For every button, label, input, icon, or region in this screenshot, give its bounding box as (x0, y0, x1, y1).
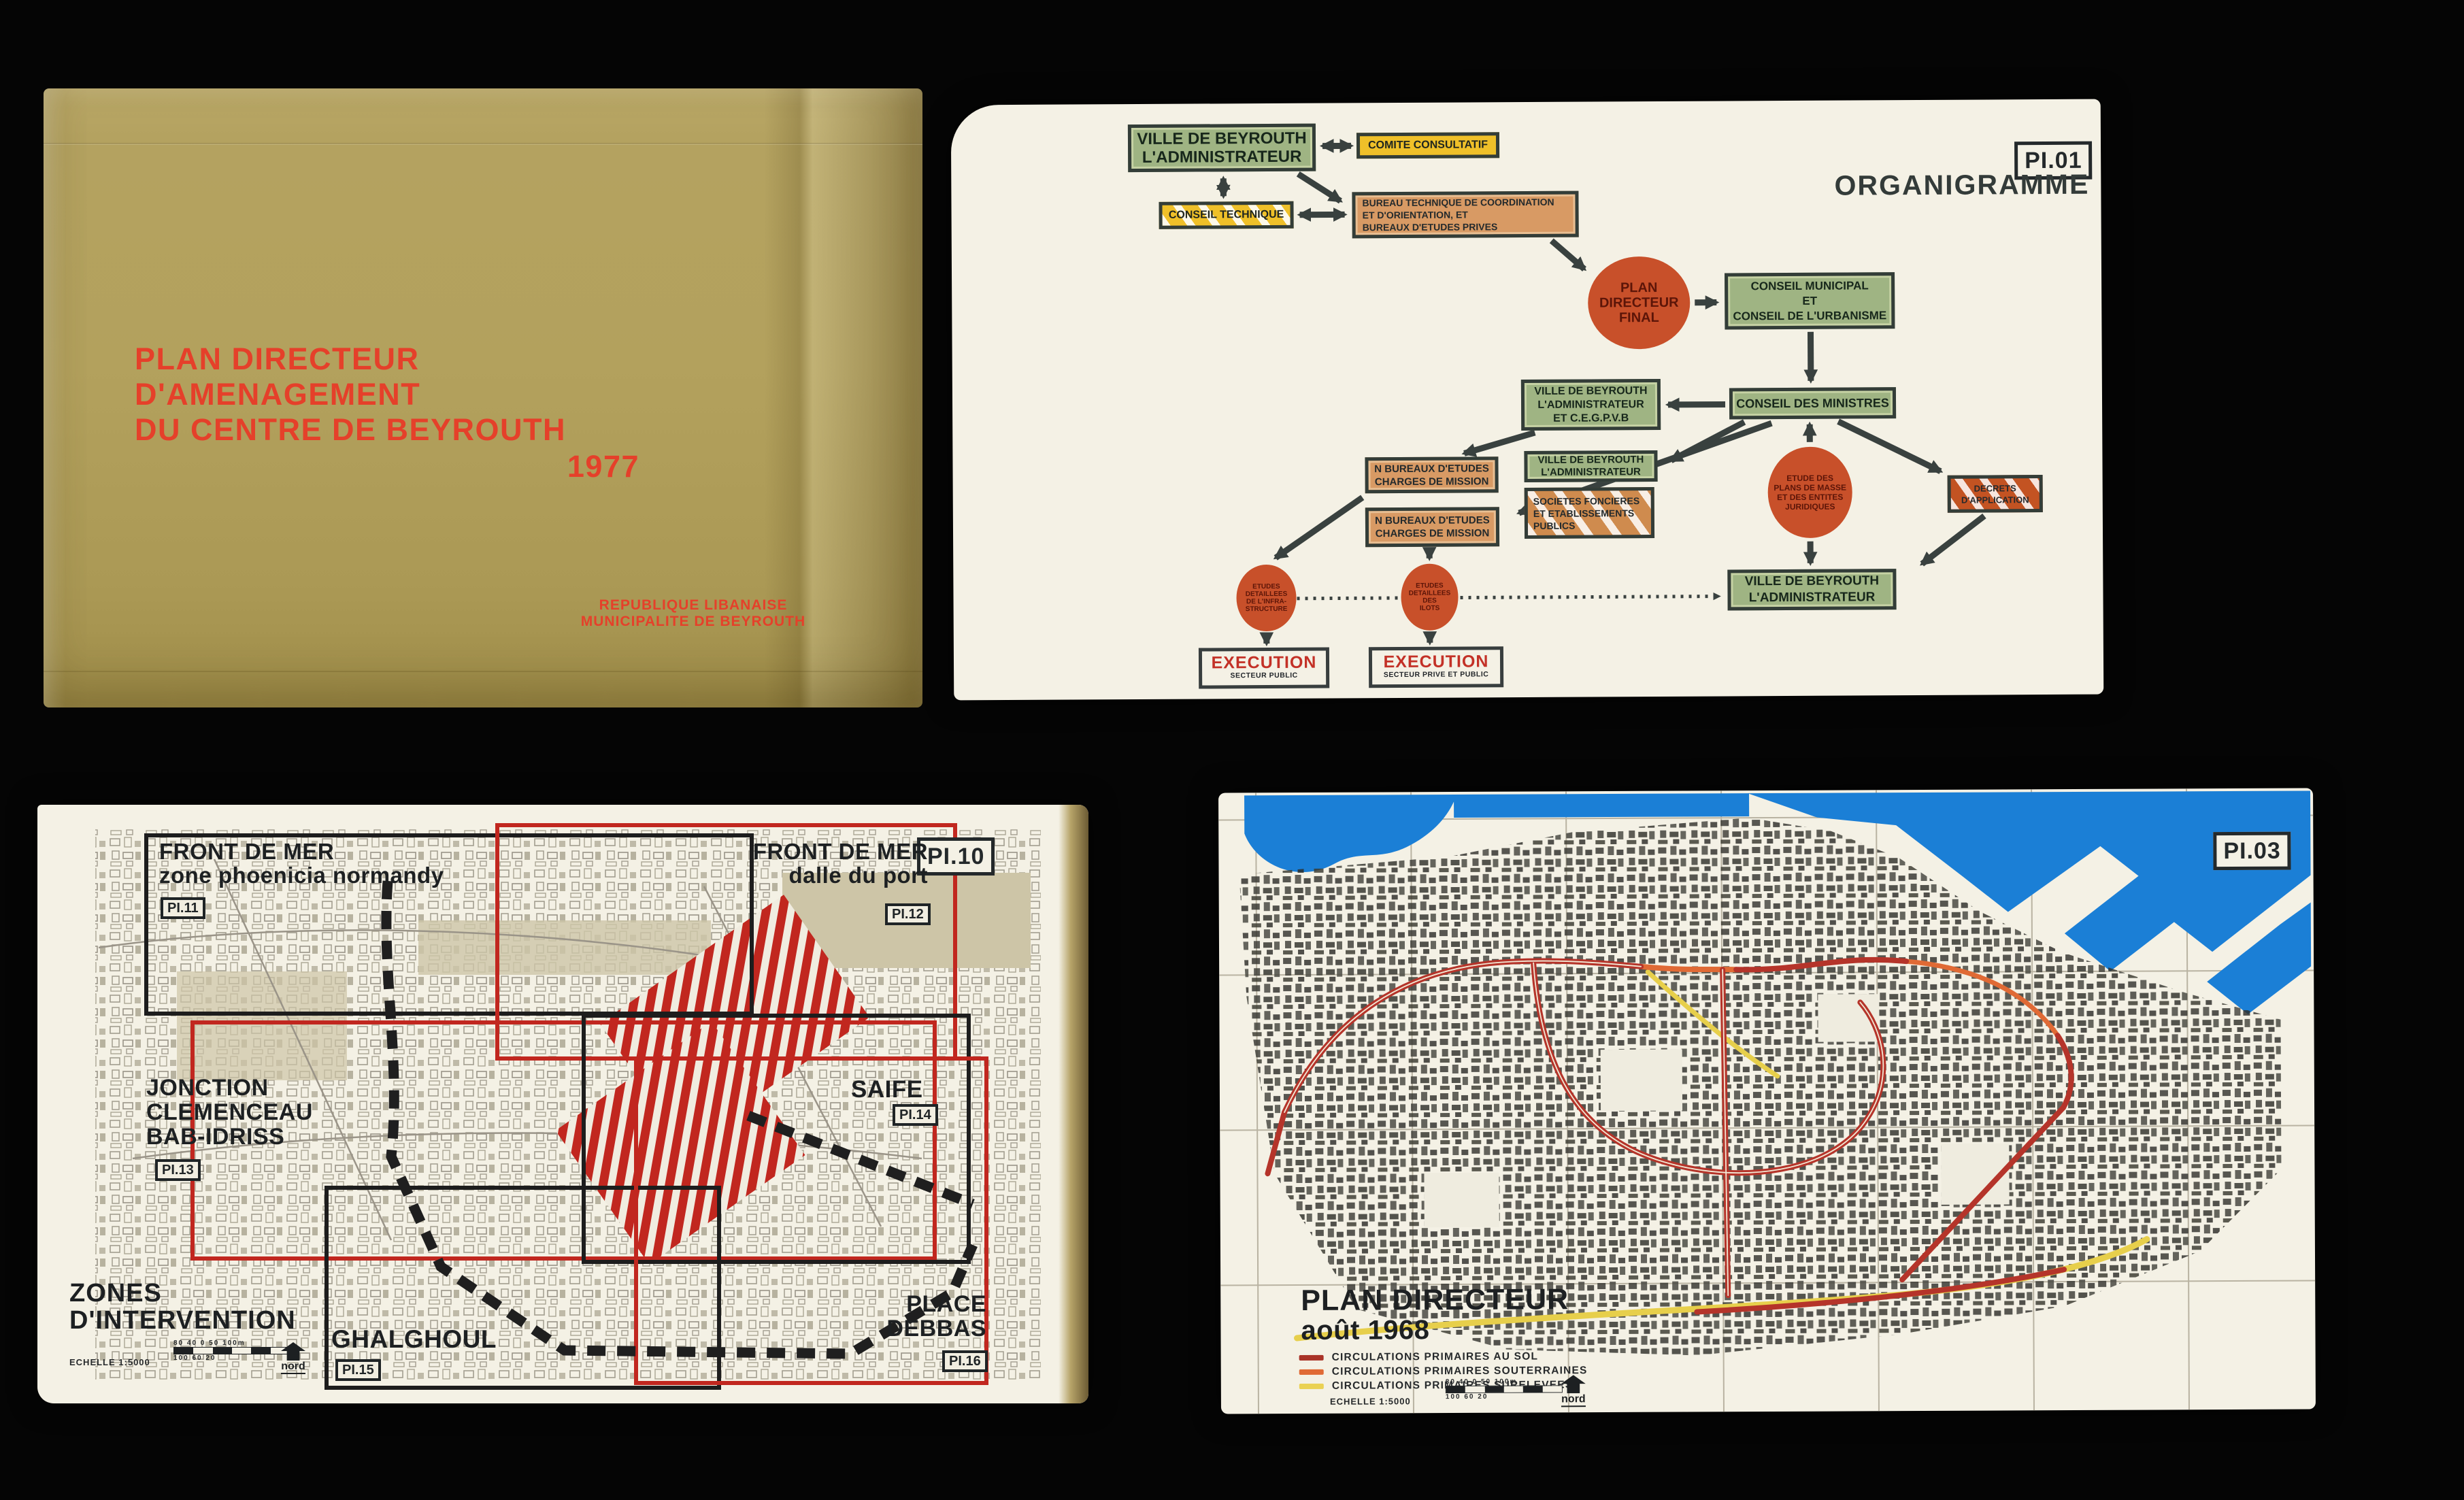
legend-swatch-souterraines (1299, 1369, 1324, 1375)
cover-title: PLAN DIRECTEUR D'AMENAGEMENT DU CENTRE D… (135, 341, 639, 484)
org-node-societes-foncieres: SOCIETES FONCIERES ET ETABLISSEMENTS PUB… (1525, 487, 1654, 539)
plan-scale-numbers-top: 80 40 0 50 100m (1446, 1378, 1563, 1386)
cover-title-year: 1977 (135, 449, 639, 484)
zone-badge-pi11: PI.11 (161, 897, 205, 919)
zone-badge-pi14: PI.14 (893, 1104, 938, 1126)
plan-scale-label: ECHELLE 1:5000 (1330, 1396, 1411, 1407)
legend-label-souterraines: CIRCULATIONS PRIMAIRES SOUTERRAINES (1332, 1365, 1588, 1378)
org-node-etudes-infrastructure: ETUDES DETAILLEES DE L'INFRA- STRUCTURE (1236, 565, 1297, 631)
legend-row-souterraines: CIRCULATIONS PRIMAIRES SOUTERRAINES (1299, 1365, 1588, 1378)
plan-scale-bar-segments (1446, 1385, 1563, 1393)
org-node-conseil-ministres: CONSEIL DES MINISTRES (1729, 387, 1896, 419)
cover-bottom-fold-line (44, 671, 922, 672)
org-node-conseil-technique: CONSEIL TECHNIQUE (1159, 201, 1293, 229)
org-node-decrets-application: DECRETS D'APPLICATION (1948, 475, 2043, 513)
page-curl-edge (1059, 805, 1088, 1403)
plan-subtitle: août 1968 (1301, 1316, 1429, 1345)
plan-north-arrow-icon (1561, 1375, 1586, 1393)
org-node-ville-administrateur-bottom: VILLE DE BEYROUTH L'ADMINISTRATEUR (1727, 569, 1896, 610)
org-node-plan-directeur-final: PLAN DIRECTEUR FINAL (1588, 256, 1691, 350)
zone-label-front-de-mer-dalle: FRONT DE MER dalle du port (724, 840, 928, 888)
legend-label-au-sol: CIRCULATIONS PRIMAIRES AU SOL (1332, 1350, 1539, 1363)
plan-scale-bar: 80 40 0 50 100m 100 60 20 (1446, 1378, 1563, 1401)
scale-numbers-top: 80 40 0 50 100m (173, 1339, 290, 1347)
org-node-conseil-municipal: CONSEIL MUNICIPAL ET CONSEIL DE L'URBANI… (1725, 272, 1895, 329)
org-node-bureau-technique: BUREAU TECHNIQUE DE COORDINATION ET D'OR… (1352, 191, 1578, 239)
scale-bar: 80 40 0 50 100m 100 60 20 (173, 1339, 290, 1362)
map-heading-zones-intervention: ZONES D'INTERVENTION (69, 1280, 296, 1335)
portfolio-cover: PLAN DIRECTEUR D'AMENAGEMENT DU CENTRE D… (44, 88, 922, 707)
plate-badge-pi10: PI.10 (917, 837, 995, 876)
north-arrow-icon (281, 1342, 305, 1361)
plan-title: PLAN DIRECTEUR (1301, 1284, 1569, 1316)
photo-collage-stage: PLAN DIRECTEUR D'AMENAGEMENT DU CENTRE D… (0, 0, 2464, 1500)
cover-fold-line (44, 143, 922, 145)
legend-swatch-au-sol (1299, 1355, 1324, 1361)
scale-bar-segments (173, 1347, 290, 1354)
cover-institution: REPUBLIQUE LIBANAISE MUNICIPALITE DE BEY… (520, 597, 867, 630)
organigramme-title: ORGANIGRAMME (1778, 169, 2089, 202)
organigramme-page: PI.01 ORGANIGRAMME VILLE DE BEYROUTH L'A… (951, 99, 2104, 701)
zone-badge-pi13: PI.13 (155, 1159, 201, 1181)
legend-swatch-surelevees (1299, 1384, 1324, 1389)
org-node-bureaux-etudes-1: N BUREAUX D'ETUDES CHARGES DE MISSION (1365, 456, 1498, 493)
scale-label: ECHELLE 1:5000 (69, 1357, 150, 1367)
plan-north-indicator: nord (1561, 1375, 1586, 1407)
org-node-ville-administrateur-mid: VILLE DE BEYROUTH L'ADMINISTRATEUR (1524, 450, 1657, 482)
execution-prive-subtitle: SECTEUR PRIVE ET PUBLIC (1372, 670, 1500, 679)
zone-label-saife: SAIFE (851, 1077, 923, 1102)
plan-scale-numbers-bottom: 100 60 20 (1446, 1393, 1563, 1401)
dotted-connector (1297, 597, 1720, 599)
org-node-execution-public: EXECUTION SECTEUR PUBLIC (1199, 648, 1329, 689)
zone-label-ghalghoul: GHALGHOUL (331, 1326, 497, 1352)
plan-north-label: nord (1561, 1393, 1586, 1407)
zones-intervention-map-page: PI.10 FRONT DE MER zone phoenicia norman… (37, 805, 1088, 1403)
zone-label-jonction-clemenceau: JONCTION CLEMENCEAU BAB-IDRISS (146, 1076, 313, 1149)
plate-badge-pi03: PI.03 (2213, 832, 2291, 870)
org-node-comite-consultatif: COMITE CONSULTATIF (1356, 132, 1499, 159)
scale-numbers-bottom: 100 60 20 (173, 1354, 290, 1362)
org-node-ville-cegpvb: VILLE DE BEYROUTH L'ADMINISTRATEUR ET C.… (1521, 379, 1661, 431)
org-node-ville-administrateur-top: VILLE DE BEYROUTH L'ADMINISTRATEUR (1128, 124, 1316, 172)
zone-badge-pi12: PI.12 (885, 903, 931, 925)
org-node-etude-plans-masse: ETUDE DES PLANS DE MASSE ET DES ENTITES … (1767, 447, 1852, 539)
north-label: nord (281, 1361, 305, 1374)
zone-badge-pi16: PI.16 (942, 1350, 988, 1372)
zone-badge-pi15: PI.15 (335, 1359, 381, 1381)
execution-prive-title: EXECUTION (1372, 652, 1500, 671)
execution-public-subtitle: SECTEUR PUBLIC (1202, 671, 1326, 680)
zone-label-front-de-mer-phoenicia: FRONT DE MER zone phoenicia normandy (159, 840, 444, 888)
north-indicator: nord (281, 1342, 305, 1374)
zone-label-place-debbas: PLACE DEBBAS (782, 1292, 986, 1341)
org-node-etudes-ilots: ETUDES DETAILLEES DES ILOTS (1401, 564, 1459, 631)
plan-directeur-map-page: PI.03 PLAN DIRECTEUR août 1968 CIRCULATI… (1218, 788, 2316, 1414)
execution-public-title: EXECUTION (1202, 654, 1326, 672)
legend-row-au-sol: CIRCULATIONS PRIMAIRES AU SOL (1299, 1350, 1539, 1364)
org-node-execution-prive: EXECUTION SECTEUR PRIVE ET PUBLIC (1369, 646, 1503, 688)
cover-title-lines: PLAN DIRECTEUR D'AMENAGEMENT DU CENTRE D… (135, 341, 639, 448)
org-node-bureaux-etudes-2: N BUREAUX D'ETUDES CHARGES DE MISSION (1365, 507, 1499, 547)
